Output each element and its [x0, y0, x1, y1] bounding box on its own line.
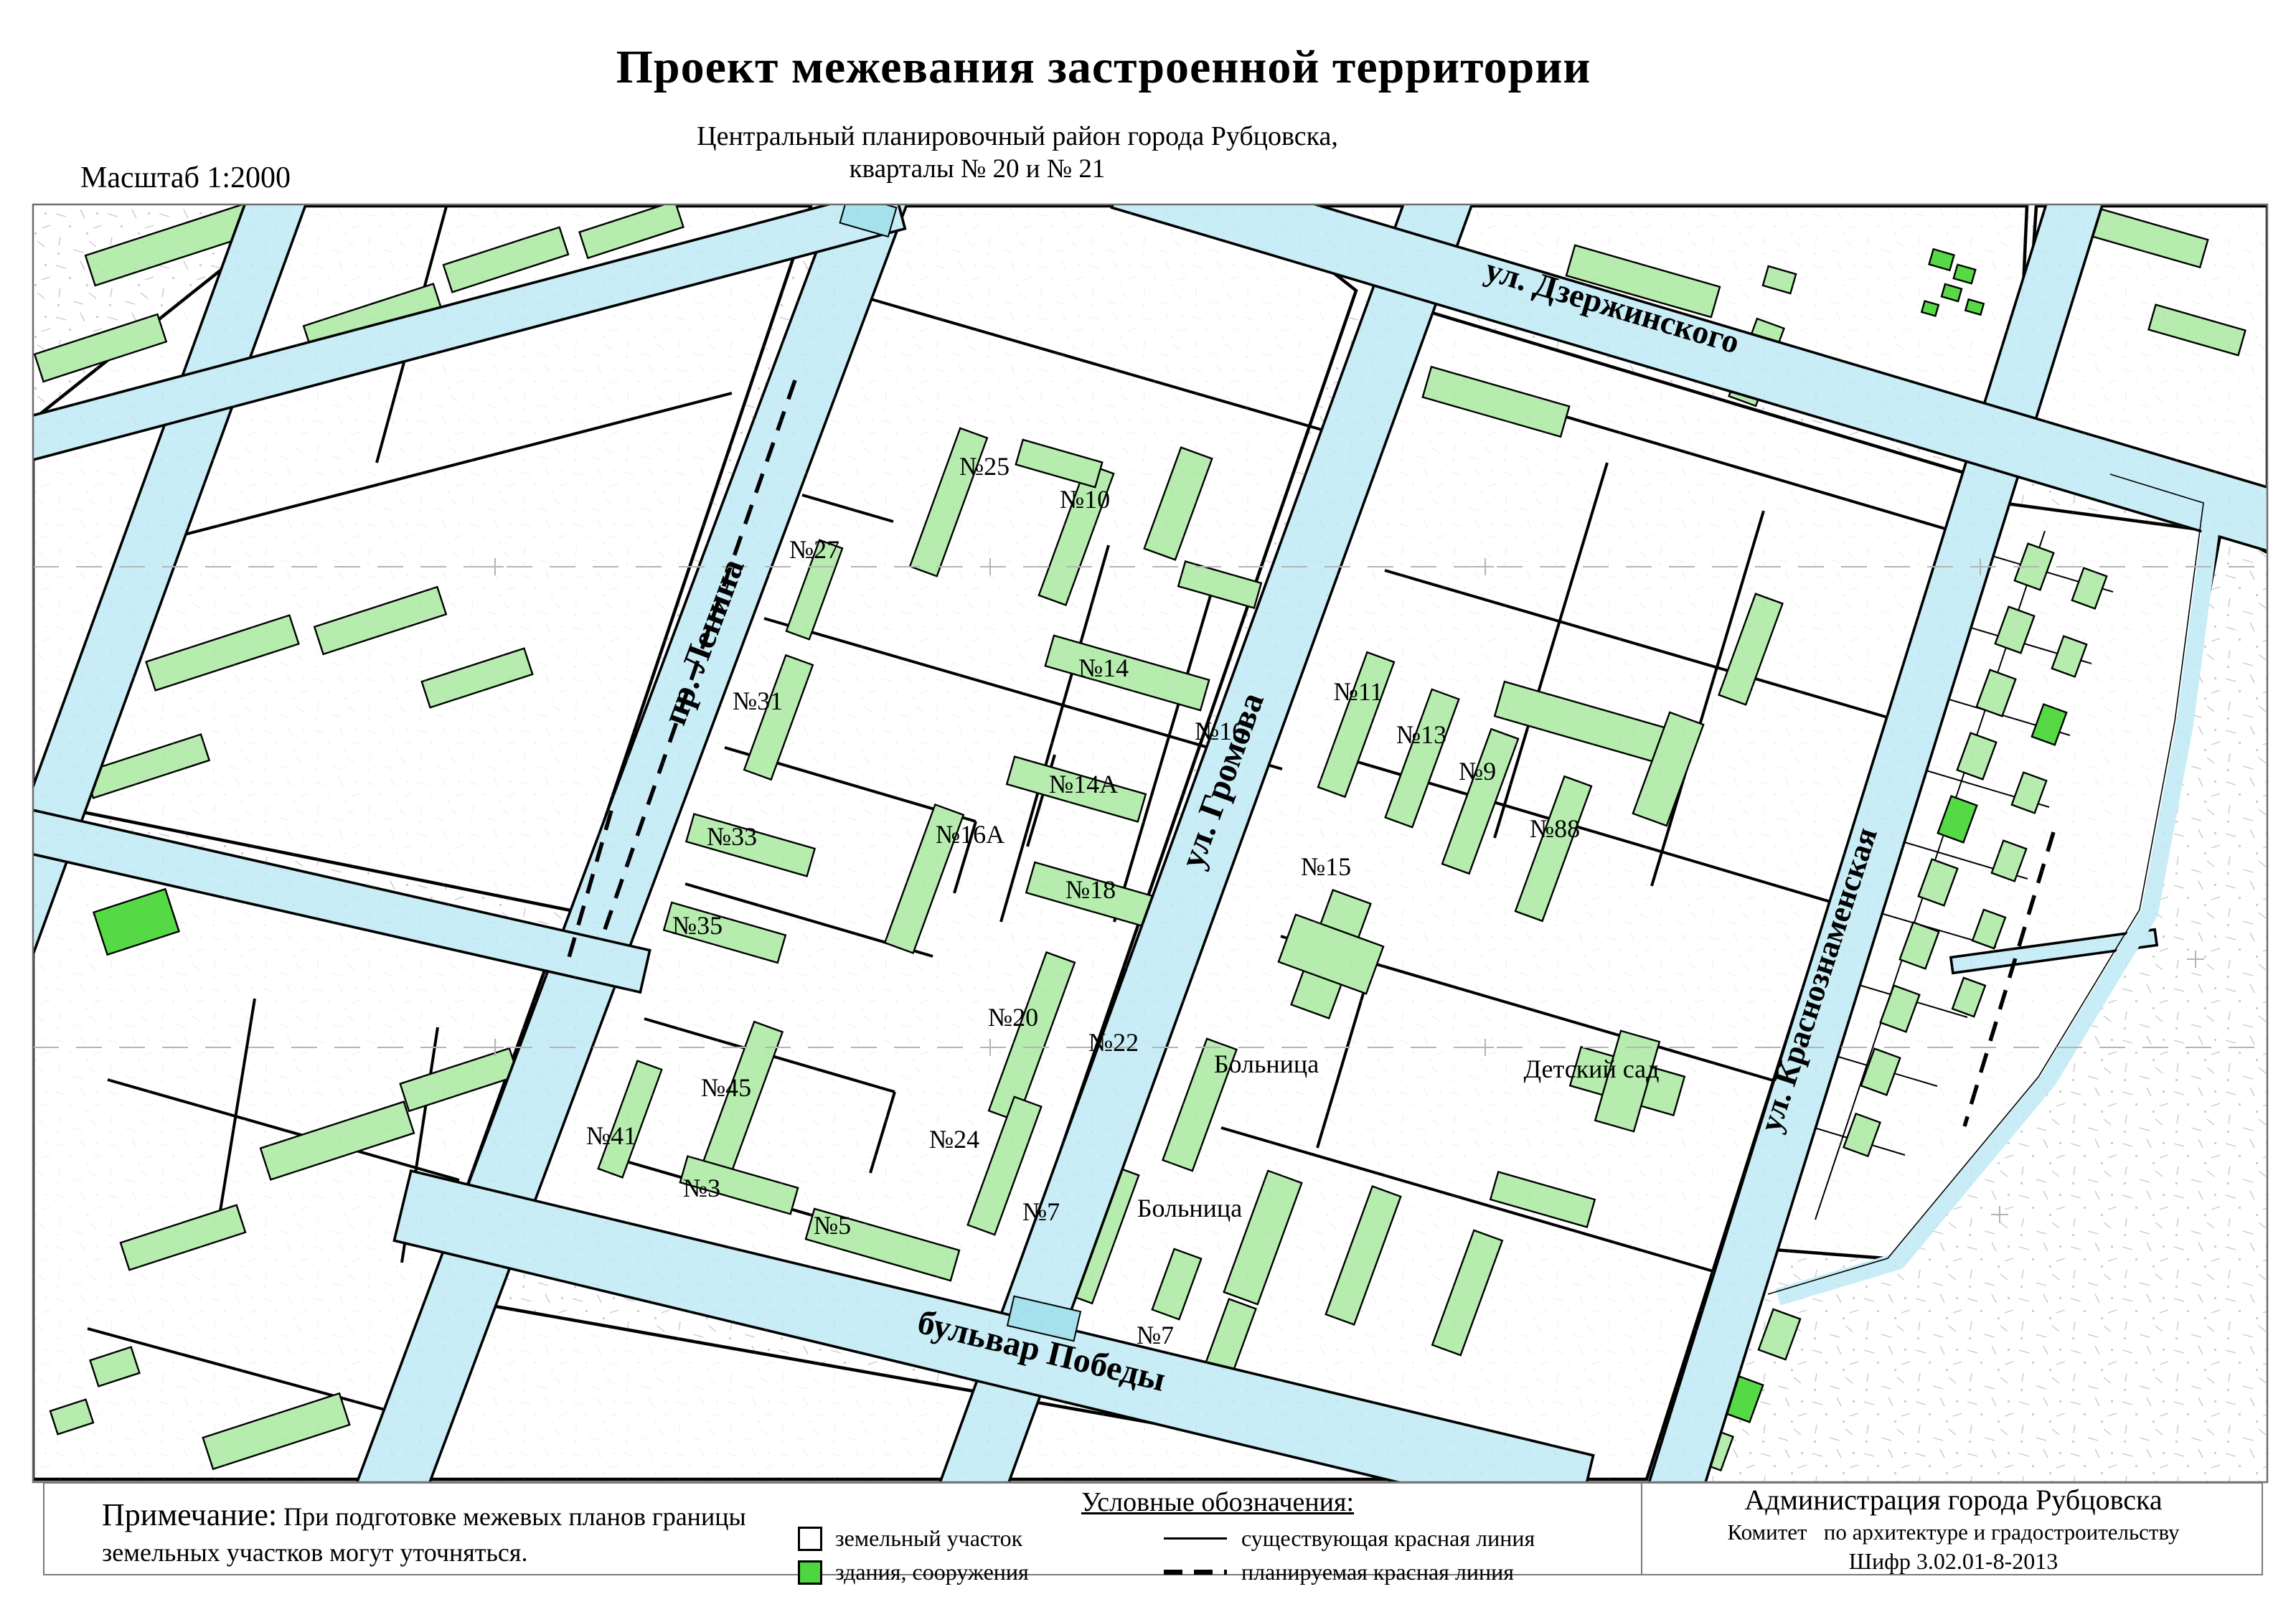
parcel-swatch-icon	[798, 1527, 822, 1551]
parcel-label: №3	[683, 1174, 720, 1202]
legend: Условные обозначения: земельный участок …	[791, 1486, 1645, 1585]
parcel-label: №45	[701, 1073, 751, 1102]
parcel-label: №24	[929, 1125, 979, 1154]
parcel-label: №14	[1078, 654, 1129, 682]
legend-label: здания, сооружения	[835, 1559, 1029, 1585]
admin-committee: Комитет по архитектуре и градостроительс…	[1642, 1519, 2264, 1545]
parcel-label: №33	[707, 822, 757, 851]
map-texture-overlay	[33, 204, 2267, 1482]
parcel-label: №15	[1301, 852, 1351, 881]
parcel-label: №9	[1459, 757, 1496, 786]
parcel-label: №18	[1065, 875, 1116, 904]
map-canvas[interactable]: ул. Дзержинскогопр. Ленинаул. Громоваул.…	[0, 0, 2296, 1612]
legend-label: планируемая красная линия	[1241, 1559, 1514, 1585]
page: { "header": { "title": "Проект межевания…	[0, 0, 2296, 1612]
building-swatch-icon	[798, 1560, 822, 1585]
parcel-label: №41	[586, 1121, 636, 1150]
legend-label: земельный участок	[835, 1525, 1022, 1552]
admin-block: Администрация города Рубцовска Комитет п…	[1641, 1484, 2264, 1574]
parcel-label: №5	[814, 1211, 851, 1240]
legend-title: Условные обозначения:	[791, 1486, 1645, 1518]
parcel-label: №16А	[936, 820, 1004, 849]
area-label: Больница	[1214, 1050, 1319, 1078]
legend-label: существующая красная линия	[1241, 1525, 1535, 1552]
legend-item-parcel: земельный участок	[798, 1525, 1035, 1552]
parcel-label: №7	[1022, 1197, 1060, 1226]
parcel-label: №27	[789, 535, 839, 564]
note-text-line2: земельных участков могут уточняться.	[102, 1537, 827, 1568]
parcel-label: №7	[1137, 1321, 1174, 1349]
note-text-line1: При подготовке межевых планов границы	[283, 1502, 746, 1531]
parcel-label: №35	[672, 911, 723, 940]
parcel-label: №11	[1333, 677, 1383, 706]
area-label: Детский сад	[1524, 1055, 1660, 1083]
note-label: Примечание:	[102, 1497, 277, 1532]
area-label: Больница	[1137, 1194, 1242, 1222]
admin-org: Администрация города Рубцовска	[1642, 1483, 2264, 1517]
legend-item-existing-red-line: существующая красная линия	[1164, 1525, 1537, 1552]
legend-item-building: здания, сооружения	[798, 1559, 1035, 1585]
admin-cipher: Шифр 3.02.01-8-2013	[1642, 1548, 2264, 1575]
legend-item-planned-red-line: планируемая красная линия	[1164, 1559, 1537, 1585]
parcel-label: №25	[959, 452, 1010, 481]
note-block: Примечание: При подготовке межевых плано…	[102, 1496, 827, 1568]
parcel-label: №13	[1396, 720, 1446, 749]
solid-line-icon	[1164, 1537, 1227, 1540]
parcel-label: №14А	[1049, 770, 1118, 798]
map-layers: ул. Дзержинскогопр. Ленинаул. Громоваул.…	[0, 133, 2296, 1527]
parcel-label: №31	[733, 687, 783, 715]
dashed-line-icon	[1164, 1570, 1227, 1575]
footer-strip: Примечание: При подготовке межевых плано…	[43, 1482, 2263, 1575]
parcel-label: №20	[988, 1003, 1038, 1032]
parcel-label: №88	[1530, 814, 1580, 843]
parcel-label: №22	[1088, 1028, 1139, 1057]
parcel-label: №16	[1195, 717, 1245, 745]
parcel-label: №10	[1060, 485, 1110, 514]
